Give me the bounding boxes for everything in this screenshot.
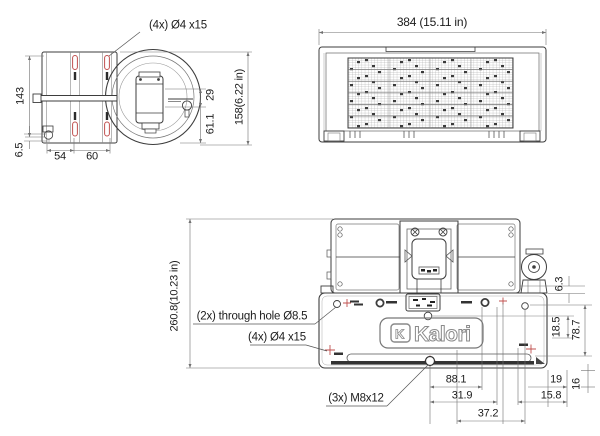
kalori-logo: K Kalori: [380, 318, 483, 348]
drawing-sheet: K Kalori: [0, 0, 600, 436]
front-view-drawing: [319, 47, 546, 142]
front-dim-overall-width: 384 (15.11 in): [397, 16, 467, 28]
bottom-through-hole-callout: (2x) through hole Ø8.5: [197, 311, 308, 323]
side-dim-overall-height: 158(6.22 in): [235, 69, 246, 125]
bottom-dim-corner-offset: 16: [572, 378, 583, 390]
side-slot-callout: (4x) Ø4 x15: [149, 20, 207, 32]
bottom-motor-mount: [400, 221, 458, 293]
bottom-dim-hole-a: 31.9: [452, 391, 473, 402]
side-dim-spacing-2: 60: [86, 152, 98, 163]
side-dim-axis-height: 61.1: [206, 114, 217, 135]
bottom-dim-gap: 6.3: [555, 277, 566, 292]
bottom-stud-callout: (3x) M8x12: [328, 393, 384, 405]
side-valve: [168, 99, 193, 117]
bottom-dim-overall-depth: 260.8(10.23 in): [170, 261, 181, 332]
side-motor: [136, 72, 163, 133]
engineering-drawing: K Kalori: [0, 0, 600, 436]
kalori-monogram: K: [395, 327, 405, 342]
front-view-dimensions: [319, 29, 546, 45]
bottom-dim-hole-c: 37.2: [478, 409, 499, 420]
bottom-base-plate: K Kalori: [319, 286, 547, 368]
bottom-view-drawing: K Kalori: [319, 219, 547, 368]
side-dim-motor-top: 29: [206, 89, 217, 101]
side-view-drawing: [33, 50, 201, 145]
bottom-slot-callout: (4x) Ø4 x15: [248, 332, 306, 344]
bottom-dim-stud-edge: 19: [550, 375, 562, 386]
kalori-wordmark: Kalori: [414, 323, 471, 346]
bottom-dim-stud-spacing: 88.1: [446, 375, 467, 386]
front-grille: [348, 58, 513, 128]
bottom-dim-hole-offset: 18.5: [552, 317, 563, 338]
bottom-dim-hole-span: 78.7: [572, 320, 583, 341]
side-dim-spacing-1: 54: [54, 152, 66, 163]
bottom-dim-hole-b: 15.8: [541, 391, 562, 402]
side-dim-body-height: 143: [16, 87, 27, 105]
bottom-motor: [521, 249, 547, 293]
side-dim-drain-offset: 6.5: [15, 143, 26, 158]
